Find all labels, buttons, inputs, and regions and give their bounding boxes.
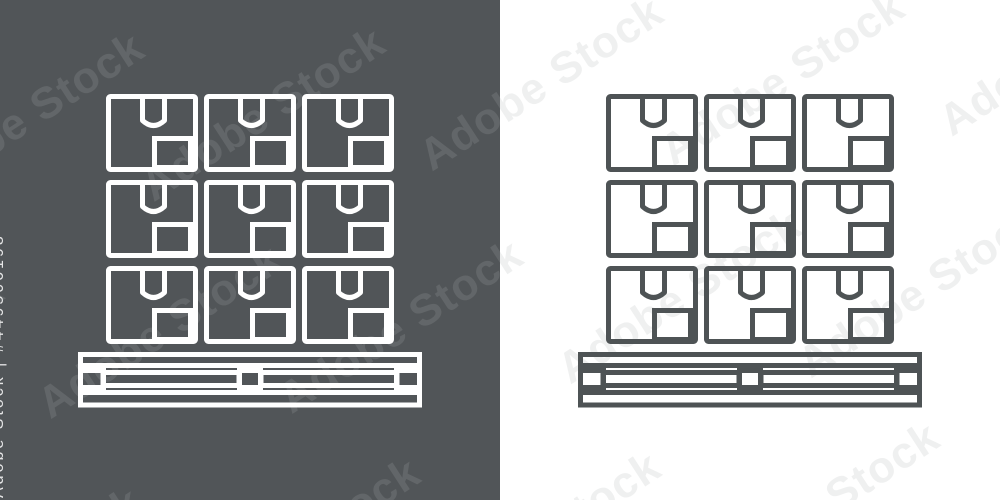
box-icon	[305, 269, 392, 342]
box-icon	[207, 183, 294, 256]
box-icon	[207, 97, 294, 170]
box-icon	[109, 269, 196, 342]
box-icon	[805, 269, 892, 342]
watermark-text: Adobe Stock	[167, 447, 429, 500]
box-icon	[707, 269, 794, 342]
watermark-text: Adobe Stock	[500, 442, 670, 500]
stock-image-preview: Adobe StockAdobe StockAdobe StockAdobe S…	[0, 0, 1000, 500]
box-icon	[305, 183, 392, 256]
pallet-boxes-icon-gray	[578, 94, 922, 408]
box-icon	[109, 183, 196, 256]
stock-id-text: Adobe Stock | #449506198	[0, 233, 8, 498]
watermark-text: Adobe Stock	[0, 265, 13, 460]
watermark-text: Adobe Stock	[687, 412, 949, 500]
box-icon	[305, 97, 392, 170]
box-icon	[109, 97, 196, 170]
box-icon	[609, 183, 696, 256]
box-icon	[707, 183, 794, 256]
pallet-icon	[81, 355, 420, 406]
watermark-text: Adobe Stock	[0, 477, 151, 500]
box-icon	[609, 97, 696, 170]
box-icon	[805, 97, 892, 170]
pallet-boxes-icon-white	[78, 94, 422, 408]
watermark-text: Adobe Stock	[408, 442, 500, 500]
watermark-text: Adobe Stock	[928, 406, 1000, 500]
watermark-text: Adobe Stock	[411, 0, 500, 182]
watermark-text: Adobe Stock	[930, 0, 1000, 146]
pallet-icon	[581, 355, 920, 406]
box-icon	[805, 183, 892, 256]
box-icon	[707, 97, 794, 170]
watermark-text: Adobe Stock	[0, 0, 16, 5]
light-panel: Adobe StockAdobe StockAdobe StockAdobe S…	[500, 0, 1000, 500]
dark-panel: Adobe StockAdobe StockAdobe StockAdobe S…	[0, 0, 500, 500]
watermark-text: Adobe Stock	[500, 229, 533, 424]
box-icon	[207, 269, 294, 342]
box-icon	[609, 269, 696, 342]
